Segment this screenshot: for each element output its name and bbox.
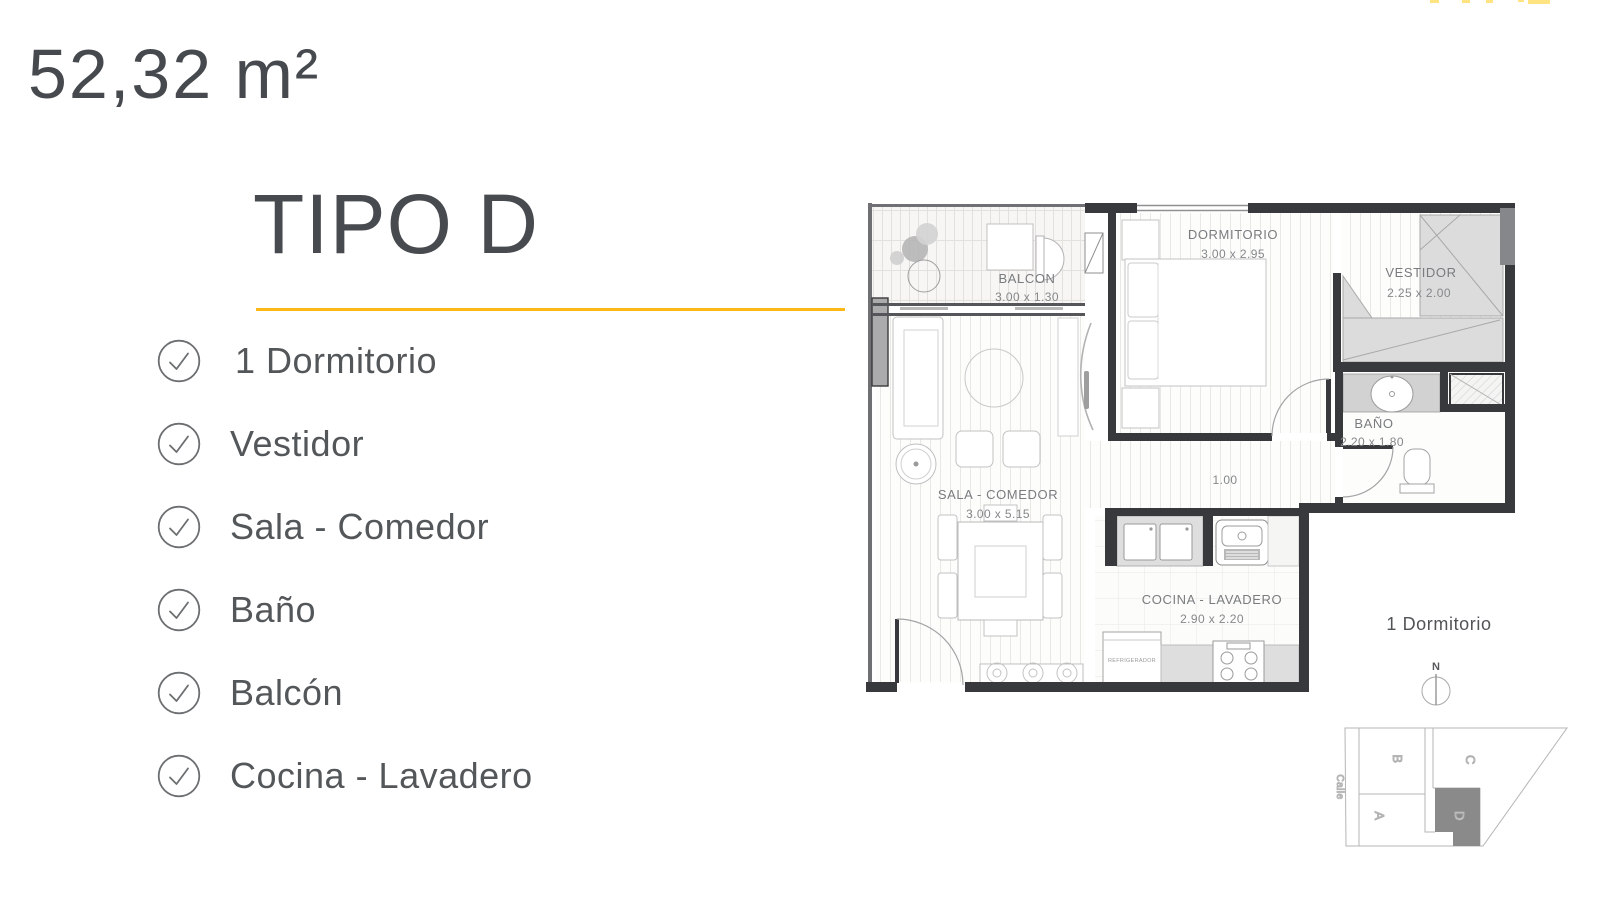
check-circle-icon (157, 505, 201, 549)
area-title: 52,32 m² (28, 34, 320, 114)
site-key-plan: B C A D Calle (1334, 728, 1567, 846)
site-unit-b-label: B (1390, 754, 1405, 763)
room-label-balcon: BALCON (998, 271, 1055, 286)
feature-label: Vestidor (230, 423, 364, 465)
room-label-dormitorio: DORMITORIO (1188, 227, 1278, 242)
room-dims-bano: 2.20 x 1.80 (1340, 435, 1404, 449)
list-item: Cocina - Lavadero (157, 754, 533, 798)
feature-label: Sala - Comedor (230, 506, 489, 548)
feature-label: 1 Dormitorio (235, 340, 437, 382)
feature-list: 1 Dormitorio Vestidor Sala - Comedor Bañ… (157, 339, 533, 798)
check-circle-icon (157, 339, 201, 383)
site-unit-c-label: C (1463, 755, 1478, 765)
room-label-vestidor: VESTIDOR (1385, 265, 1456, 280)
room-dims-cocina: 2.90 x 2.20 (1180, 612, 1244, 626)
site-unit-a-label: A (1372, 811, 1387, 820)
room-label-cocina: COCINA - LAVADERO (1142, 592, 1282, 607)
north-compass-icon: N (1422, 661, 1450, 705)
site-unit-d-label: D (1452, 811, 1467, 821)
hall-dimension: 1.00 (1213, 473, 1238, 487)
list-item: 1 Dormitorio (157, 339, 533, 383)
brochure-page: 52,32 m² TIPO D 1 Dormitorio Vestidor Sa… (0, 0, 1600, 900)
accent-divider (256, 308, 845, 311)
floor-plan: BALCON 3.00 x 1.30 DORMITORIO 3.00 x 2.9… (845, 195, 1600, 900)
street-label: Calle (1334, 774, 1345, 799)
room-dims-dormitorio: 3.00 x 2.95 (1201, 247, 1265, 261)
room-dims-balcon: 3.00 x 1.30 (995, 290, 1059, 304)
refrigerator-label: REFRIGERADOR (1108, 658, 1156, 664)
room-label-bano: BAÑO (1354, 416, 1393, 431)
list-item: Sala - Comedor (157, 505, 533, 549)
feature-label: Baño (230, 589, 316, 631)
plan-caption: 1 Dormitorio (1386, 614, 1491, 634)
list-item: Vestidor (157, 422, 533, 466)
room-dims-sala: 3.00 x 5.15 (966, 507, 1030, 521)
room-label-sala: SALA - COMEDOR (938, 487, 1058, 502)
north-label: N (1432, 661, 1440, 673)
list-item: Balcón (157, 671, 533, 715)
feature-label: Cocina - Lavadero (230, 755, 533, 797)
list-item: Baño (157, 588, 533, 632)
check-circle-icon (157, 671, 201, 715)
feature-label: Balcón (230, 672, 343, 714)
check-circle-icon (157, 422, 201, 466)
page-title: TIPO D (253, 176, 539, 273)
bedroom-window (1132, 203, 1253, 213)
check-circle-icon (157, 754, 201, 798)
room-dims-vestidor: 2.25 x 2.00 (1387, 286, 1451, 300)
check-circle-icon (157, 588, 201, 632)
